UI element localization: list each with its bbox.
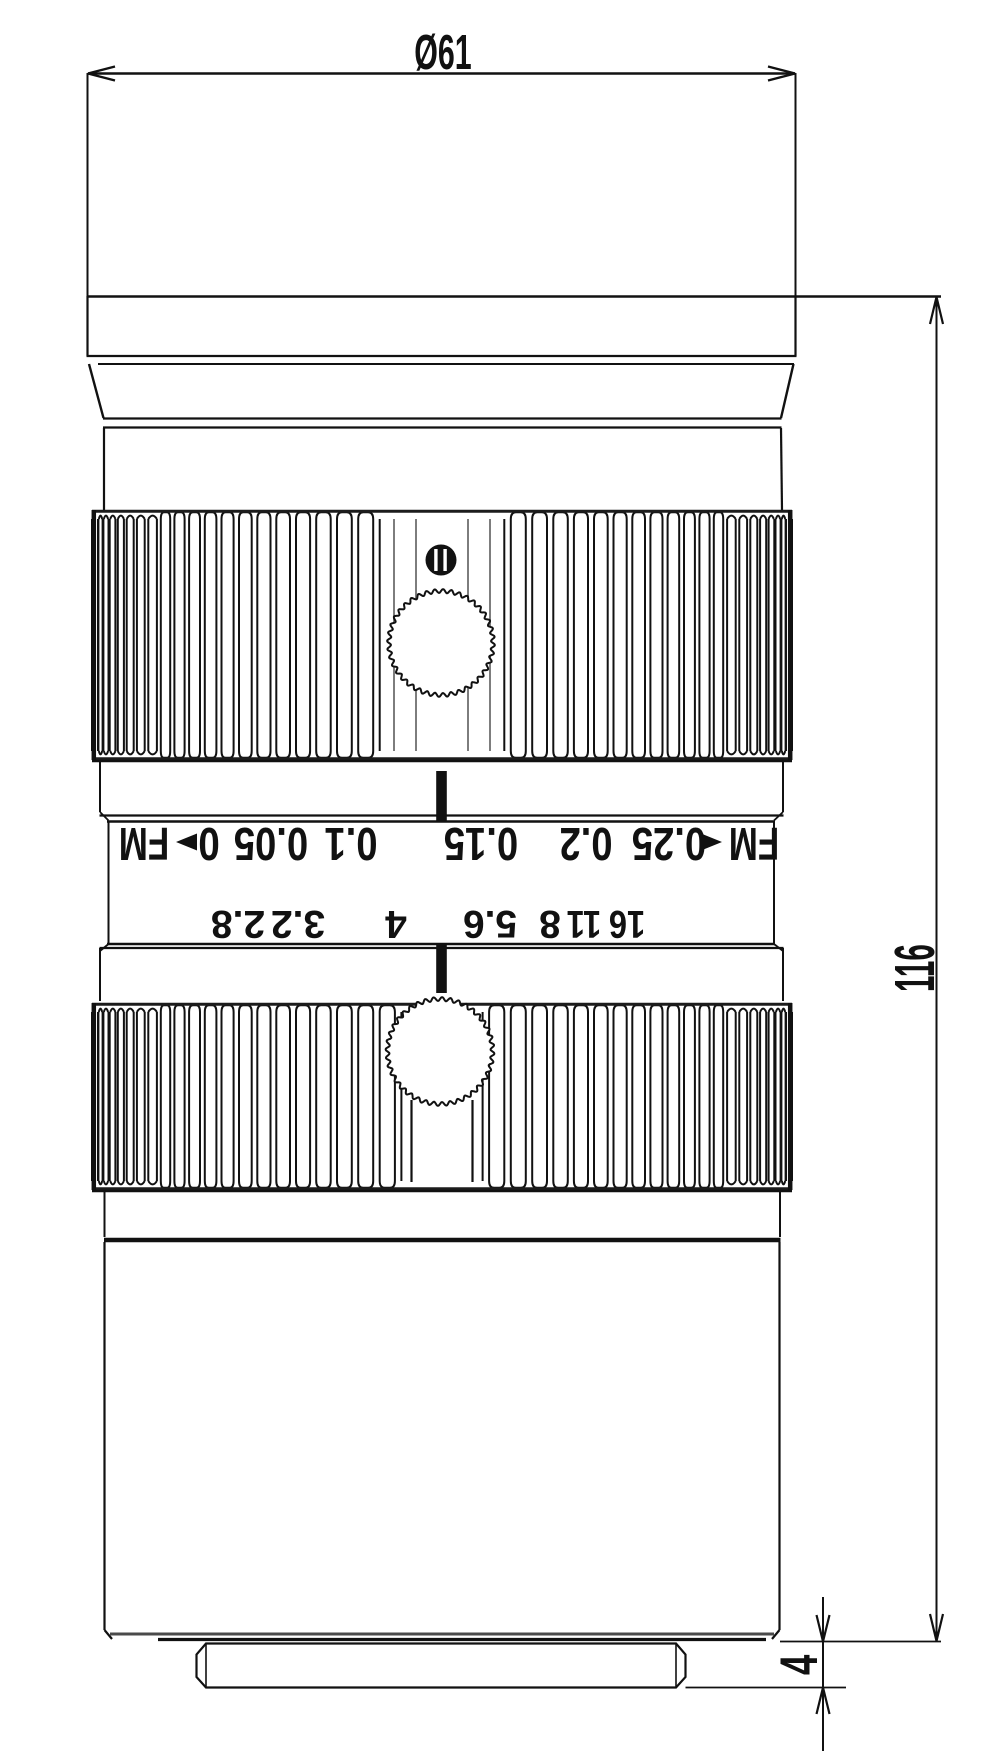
svg-text:5.6: 5.6 — [463, 902, 517, 945]
svg-text:116: 116 — [883, 944, 947, 992]
svg-text:4: 4 — [769, 1654, 828, 1675]
svg-text:0.15: 0.15 — [444, 818, 518, 869]
svg-text:3.2: 3.2 — [271, 902, 325, 945]
svg-text:4: 4 — [385, 902, 407, 945]
svg-text:0.25: 0.25 — [632, 818, 706, 869]
svg-text:0.1: 0.1 — [324, 818, 377, 869]
svg-text:Ø61: Ø61 — [414, 25, 471, 80]
svg-text:0.2: 0.2 — [559, 818, 612, 869]
svg-text:8: 8 — [539, 902, 561, 945]
svg-text:11: 11 — [567, 902, 602, 946]
svg-text:2.8: 2.8 — [211, 902, 265, 945]
svg-text:16: 16 — [609, 902, 645, 946]
svg-text:FM: FM — [729, 818, 779, 870]
svg-text:FM: FM — [119, 818, 169, 870]
svg-text:0: 0 — [198, 818, 219, 869]
svg-text:0.05: 0.05 — [234, 818, 308, 869]
